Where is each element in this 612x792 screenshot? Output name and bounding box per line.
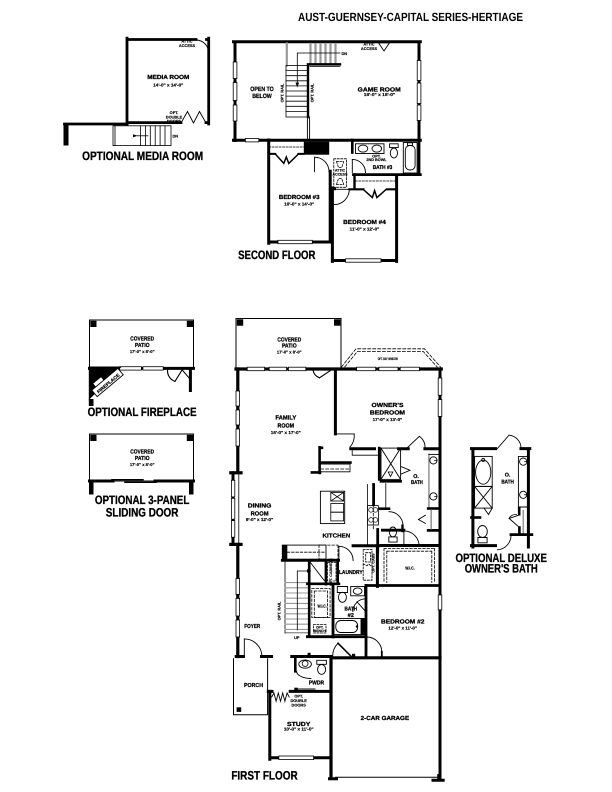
svg-text:17'-0" x 8'-0": 17'-0" x 8'-0" bbox=[277, 349, 302, 354]
svg-text:PWDR: PWDR bbox=[309, 681, 325, 687]
svg-text:FAMILY: FAMILY bbox=[275, 415, 296, 422]
svg-text:17'-0" x 8'-0": 17'-0" x 8'-0" bbox=[130, 462, 155, 467]
svg-text:BEDROOM #4: BEDROOM #4 bbox=[343, 219, 386, 226]
svg-text:BENCH: BENCH bbox=[314, 629, 327, 633]
svg-text:O.: O. bbox=[505, 473, 511, 479]
svg-text:PORCH: PORCH bbox=[244, 682, 263, 689]
svg-text:17'-0" x 8'-0": 17'-0" x 8'-0" bbox=[130, 349, 155, 354]
svg-text:OPT. CABS: OPT. CABS bbox=[371, 553, 375, 573]
svg-text:BATH: BATH bbox=[345, 606, 358, 612]
svg-text:BATH: BATH bbox=[501, 480, 514, 486]
svg-text:BEDROOM: BEDROOM bbox=[370, 410, 405, 417]
svg-text:OPTIONAL FIREPLACE: OPTIONAL FIREPLACE bbox=[88, 405, 197, 419]
svg-text:ACCESS: ACCESS bbox=[361, 46, 378, 51]
svg-text:KITCHEN: KITCHEN bbox=[323, 532, 351, 539]
svg-text:2-CAR GARAGE: 2-CAR GARAGE bbox=[361, 715, 410, 722]
svg-text:BATH #3: BATH #3 bbox=[373, 165, 393, 171]
svg-text:BEDROOM #3: BEDROOM #3 bbox=[279, 194, 320, 201]
svg-text:SLIDING DOOR: SLIDING DOOR bbox=[106, 505, 179, 519]
svg-text:COVERED: COVERED bbox=[130, 448, 154, 455]
svg-text:OPT. RAIL: OPT. RAIL bbox=[277, 601, 282, 620]
svg-text:DINING: DINING bbox=[248, 503, 272, 510]
svg-text:OPTIONAL MEDIA ROOM: OPTIONAL MEDIA ROOM bbox=[82, 149, 203, 163]
svg-text:OPT. RAIL: OPT. RAIL bbox=[310, 83, 315, 102]
svg-text:SECOND FLOOR: SECOND FLOOR bbox=[238, 248, 315, 262]
svg-text:9'-0" x 12'-0": 9'-0" x 12'-0" bbox=[246, 517, 273, 522]
svg-text:10'-0" x 11'-0": 10'-0" x 11'-0" bbox=[284, 727, 314, 732]
svg-text:14'-0" x 14'-0": 14'-0" x 14'-0" bbox=[153, 83, 183, 88]
svg-text:2ND BOWL: 2ND BOWL bbox=[366, 158, 387, 162]
svg-text:W.I.C.: W.I.C. bbox=[318, 604, 327, 609]
svg-text:ACCESS: ACCESS bbox=[179, 43, 196, 48]
svg-text:DOORS: DOORS bbox=[292, 703, 307, 708]
svg-text:OPT. BAY WINDOW: OPT. BAY WINDOW bbox=[378, 357, 399, 361]
svg-text:ROOM: ROOM bbox=[278, 422, 295, 429]
svg-text:OPT. CABINETS: OPT. CABINETS bbox=[329, 558, 333, 586]
svg-text:UP: UP bbox=[294, 635, 300, 640]
svg-text:MEDIA ROOM: MEDIA ROOM bbox=[147, 74, 189, 81]
svg-text:17'-0" x 13'-0": 17'-0" x 13'-0" bbox=[373, 417, 403, 422]
svg-text:COVERED: COVERED bbox=[277, 336, 301, 343]
svg-text:OPT. RAIL: OPT. RAIL bbox=[280, 83, 285, 102]
svg-text:BEDROOM #2: BEDROOM #2 bbox=[381, 618, 425, 625]
svg-text:FOYER: FOYER bbox=[244, 623, 261, 630]
svg-text:10'-0" x 14'-0": 10'-0" x 14'-0" bbox=[284, 202, 314, 207]
svg-text:FIRST FLOOR: FIRST FLOOR bbox=[231, 769, 297, 783]
svg-text:18'-0" x 18'-0": 18'-0" x 18'-0" bbox=[364, 92, 395, 97]
svg-text:OWNER'S: OWNER'S bbox=[372, 402, 404, 409]
svg-text:LAUNDRY: LAUNDRY bbox=[339, 570, 363, 576]
svg-text:DN: DN bbox=[173, 134, 179, 139]
svg-text:16'-0" x 17'-0": 16'-0" x 17'-0" bbox=[271, 430, 301, 435]
svg-text:12'-0" x 11'-0": 12'-0" x 11'-0" bbox=[388, 625, 417, 630]
svg-text:OPEN TO: OPEN TO bbox=[250, 86, 274, 93]
svg-text:AUST-GUERNSEY-CAPITAL SERIES-H: AUST-GUERNSEY-CAPITAL SERIES-HERTIAGE bbox=[298, 10, 523, 24]
svg-text:ACCESS: ACCESS bbox=[333, 172, 349, 176]
svg-text:OWNER'S BATH: OWNER'S BATH bbox=[465, 561, 538, 575]
svg-text:BATH: BATH bbox=[411, 480, 423, 486]
svg-text:DN: DN bbox=[342, 51, 348, 56]
svg-text:W.I.C.: W.I.C. bbox=[405, 566, 414, 571]
svg-text:11'-0" x 12'-0": 11'-0" x 12'-0" bbox=[350, 227, 380, 232]
svg-text:DOORS: DOORS bbox=[167, 119, 182, 124]
svg-text:COVERED: COVERED bbox=[130, 335, 154, 342]
svg-text:BELOW: BELOW bbox=[252, 93, 272, 100]
